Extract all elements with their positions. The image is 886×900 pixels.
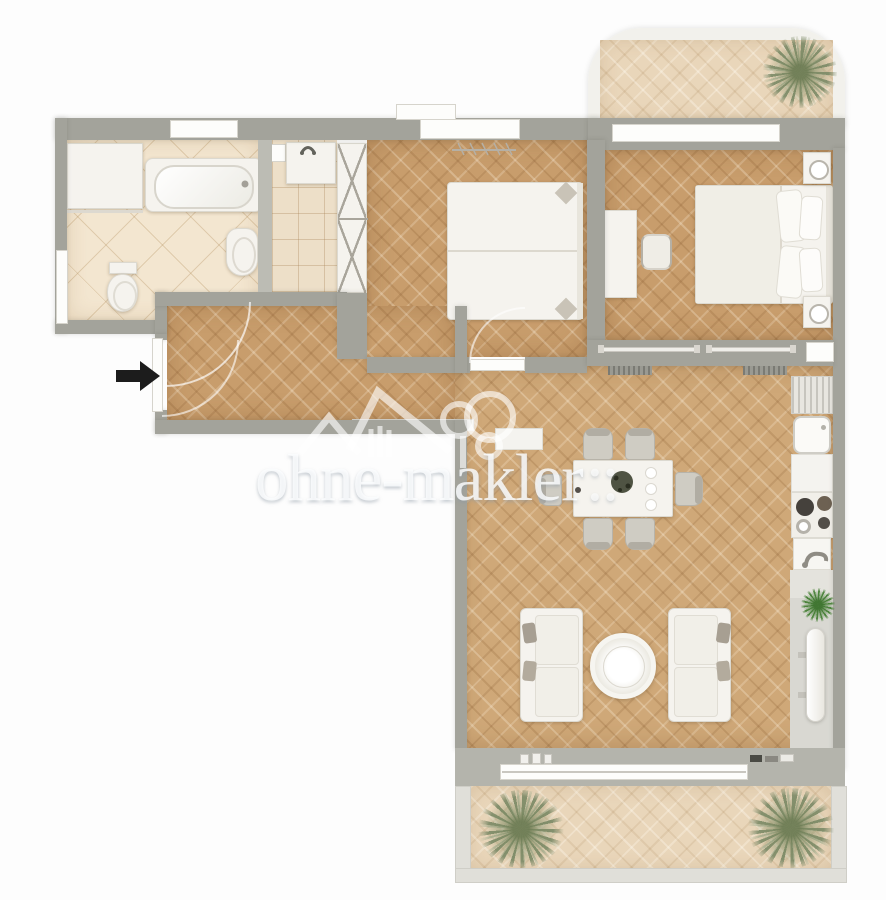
balcony-plant-left <box>478 790 564 868</box>
dining-chair-top-1 <box>583 428 613 460</box>
entrance-door-leaf <box>152 338 163 412</box>
bedroom2-sliding-rail-right <box>708 347 792 352</box>
dining-chair-right <box>675 472 703 506</box>
kitchen-plant <box>801 588 835 622</box>
wall-wardrobe-stub <box>337 293 367 359</box>
bedroom2-nightstand-bottom <box>803 296 831 328</box>
bedroom1-top-door <box>420 119 520 139</box>
balcony-plant-right <box>748 788 834 868</box>
balcony-top-plant <box>763 36 837 108</box>
cooktop-burner-3 <box>796 519 811 534</box>
sofa-right-cushion-2 <box>674 667 718 717</box>
sill-item-3 <box>544 754 552 764</box>
bedroom1-wardrobe <box>337 143 367 293</box>
cooktop-burner-2 <box>817 496 832 511</box>
bathroom-cabinet <box>67 143 143 209</box>
balcony-bottom-rail <box>455 868 847 883</box>
sofa-left-pillow-2 <box>522 660 537 681</box>
dining-plate-2 <box>645 483 657 495</box>
chair-backrest <box>586 429 610 436</box>
wall-hallway-top <box>155 292 347 306</box>
sofa-right-cushion-1 <box>674 615 718 665</box>
sofa-left <box>520 608 583 722</box>
dining-chair-left <box>538 474 562 506</box>
sofa-right <box>668 608 731 722</box>
wall-living-left <box>455 420 467 750</box>
bedroom1-door <box>470 359 525 371</box>
sill-item-5 <box>765 756 778 762</box>
toilet-seat <box>113 281 137 311</box>
sill-item-4 <box>750 755 762 762</box>
wall-bedroom-divider <box>587 140 605 348</box>
bedroom2-wall-box <box>806 342 834 362</box>
sofa-left-pillow-1 <box>522 622 538 644</box>
wc-washbasin-cabinet <box>286 142 336 184</box>
bedroom2-stool <box>641 234 672 270</box>
bathroom-top-window <box>170 120 238 138</box>
kitchen-sink-drain <box>821 425 826 430</box>
sill-item-2 <box>532 753 541 764</box>
dining-plate-3 <box>645 499 657 511</box>
nightstand-lamp-bottom <box>809 304 829 324</box>
bed1-mattress-split <box>448 250 578 252</box>
sofa-right-pillow-2 <box>716 660 731 681</box>
toilet-tank <box>109 262 137 274</box>
wall-bedroom1-bottom-b <box>525 357 587 373</box>
living-vent-right <box>743 366 787 375</box>
bathtub-basin <box>154 165 254 209</box>
coffee-table <box>590 633 656 699</box>
living-vent-left <box>608 366 652 375</box>
top-wall-niche <box>396 104 456 120</box>
dining-chair-top-2 <box>625 428 655 460</box>
kitchen-drying-rack <box>791 376 833 414</box>
kitchen-cooktop <box>791 492 833 538</box>
bidet <box>226 228 258 276</box>
dining-dark-dot <box>575 487 581 493</box>
nightstand-lamp-top <box>809 160 829 180</box>
bedroom1-bed <box>447 182 583 320</box>
bathroom-left-window <box>56 250 68 324</box>
balcony-bottom-left-rail <box>455 786 471 872</box>
sofa-left-cushion-2 <box>535 667 579 717</box>
bedroom2-sliding-rail-left <box>600 347 698 352</box>
cooktop-burner-1 <box>796 498 814 516</box>
dining-plate-1 <box>645 467 657 479</box>
dining-table <box>573 460 673 517</box>
bed2-pillow-4 <box>798 247 823 292</box>
bed2-headboard <box>826 186 832 303</box>
kitchen-sink <box>793 416 831 454</box>
kitchen-faucet-unit <box>793 538 831 570</box>
radiator <box>806 628 825 722</box>
chair-backrest <box>539 478 546 504</box>
bed1-blanket-fold-top <box>555 182 578 205</box>
living-balcony-window-mullion <box>502 771 746 773</box>
sofa-left-cushion-1 <box>535 615 579 665</box>
bed2-duvet <box>696 186 782 303</box>
cooktop-burner-4 <box>818 517 830 529</box>
wall-bathroom-bottom <box>55 320 167 334</box>
wall-bath-wc-partition <box>258 140 272 292</box>
chair-backrest <box>628 429 652 436</box>
sofa-right-pillow-1 <box>716 622 732 644</box>
dining-chair-bottom-1 <box>583 518 613 550</box>
wardrobe-x-door-top <box>338 144 366 218</box>
bed1-headboard <box>577 183 583 319</box>
bed1-blanket-fold-bottom <box>555 298 578 321</box>
floor-plan: ohne-makler:: <box>0 0 886 900</box>
bathtub <box>145 158 263 212</box>
bedroom2-balcony-window <box>612 124 780 142</box>
bedroom2-bed <box>695 185 833 304</box>
chair-backrest <box>695 476 702 504</box>
kitchen-counter <box>791 454 833 492</box>
bidet-basin <box>232 237 256 273</box>
wall-bedroom2-bottom <box>587 340 833 366</box>
dining-chair-bottom-2 <box>625 518 655 550</box>
wall-hallway-bottom <box>155 420 467 434</box>
toilet-bowl <box>107 274 138 312</box>
bed2-pillow-3 <box>798 195 823 240</box>
bathroom-cabinet-shelf <box>67 210 143 213</box>
wall-right-outer <box>833 148 845 770</box>
chair-backrest <box>628 542 652 549</box>
wardrobe-x-door-bottom <box>338 220 366 294</box>
living-shoe-cabinet <box>495 428 543 450</box>
sill-item-1 <box>520 754 529 764</box>
sill-item-6 <box>780 754 794 762</box>
wall-living-left-stub <box>455 306 467 373</box>
bedroom2-nightstand-top <box>803 152 831 184</box>
coffee-table-inner-ring <box>603 646 645 688</box>
wardrobe-shelf-line <box>338 218 368 220</box>
chair-backrest <box>586 542 610 549</box>
